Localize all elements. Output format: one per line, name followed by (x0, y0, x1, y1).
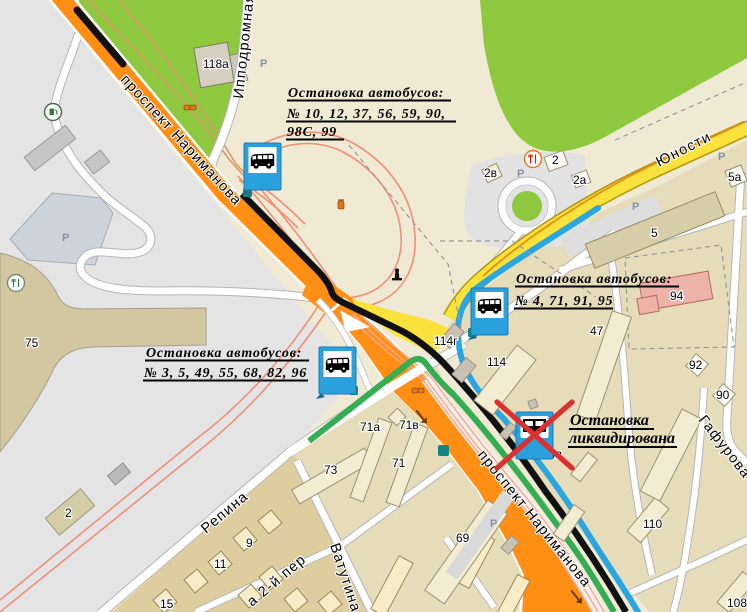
svg-text:P: P (260, 58, 267, 70)
svg-text:2в: 2в (484, 166, 497, 180)
svg-text:110: 110 (643, 517, 662, 531)
svg-text:71в: 71в (399, 418, 419, 432)
svg-text:P: P (632, 201, 639, 213)
svg-text:69: 69 (456, 531, 470, 545)
svg-text:47: 47 (590, 324, 604, 338)
svg-text:Остановка автобусов:: Остановка автобусов: (288, 86, 444, 101)
svg-text:9: 9 (246, 536, 253, 550)
svg-text:P: P (490, 518, 497, 530)
svg-text:Остановка автобусов:: Остановка автобусов: (516, 272, 672, 287)
svg-text:71: 71 (392, 456, 406, 470)
svg-text:№ 10, 12, 37, 56, 59, 90,: № 10, 12, 37, 56, 59, 90, (286, 107, 446, 122)
svg-text:71а: 71а (360, 420, 380, 434)
svg-text:118а: 118а (203, 57, 229, 71)
svg-text:90: 90 (716, 388, 730, 402)
svg-text:108: 108 (727, 596, 747, 610)
svg-text:92: 92 (689, 358, 703, 372)
svg-text:5а: 5а (728, 170, 742, 184)
svg-text:5: 5 (651, 226, 658, 240)
svg-text:73: 73 (324, 463, 338, 477)
svg-text:P: P (718, 151, 725, 163)
svg-text:Остановка автобусов:: Остановка автобусов: (146, 346, 302, 361)
svg-text:Остановка: Остановка (570, 412, 649, 429)
svg-text:11: 11 (214, 557, 227, 571)
svg-text:75: 75 (25, 336, 39, 350)
svg-text:2: 2 (552, 153, 559, 167)
svg-text:№ 3, 5, 49, 55, 68, 82, 96: № 3, 5, 49, 55, 68, 82, 96 (143, 366, 307, 381)
svg-text:2: 2 (65, 506, 72, 520)
svg-text:P: P (517, 168, 524, 180)
svg-text:2а: 2а (573, 173, 587, 187)
svg-text:P: P (62, 232, 69, 244)
svg-text:15: 15 (160, 597, 174, 611)
svg-text:94: 94 (670, 289, 684, 303)
svg-text:№ 4, 71, 91, 95: № 4, 71, 91, 95 (514, 294, 613, 309)
svg-text:114г: 114г (434, 334, 458, 348)
svg-text:114: 114 (487, 355, 506, 369)
svg-text:98С, 99: 98С, 99 (287, 125, 337, 140)
svg-text:ликвидирована: ликвидирована (568, 430, 675, 447)
